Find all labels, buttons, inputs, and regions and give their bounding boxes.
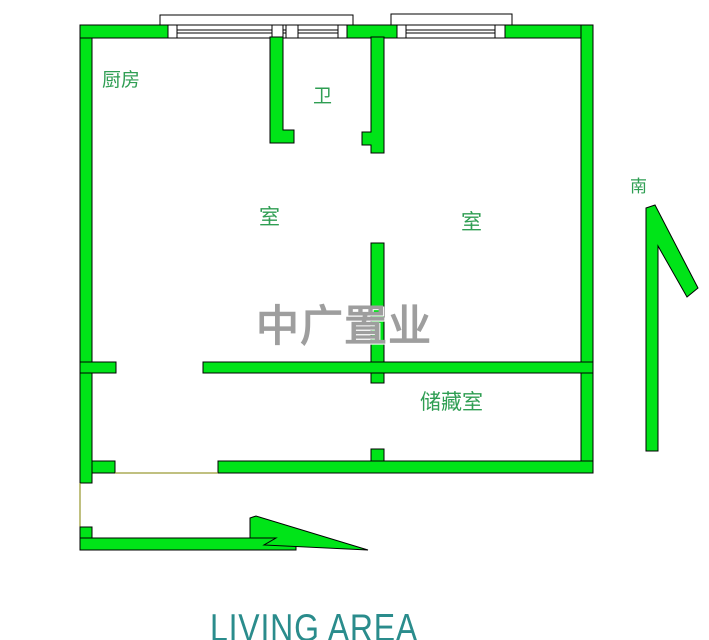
window-left	[168, 25, 347, 38]
storage-room-label: 储藏室	[420, 392, 483, 413]
living-area-caption: LIVING AREA	[210, 609, 418, 640]
south-label: 南	[630, 178, 647, 195]
entry-arrow-icon	[250, 516, 368, 550]
south-arrow-icon	[646, 205, 698, 451]
room-left-label: 室	[259, 207, 280, 228]
kitchen-label: 厨房	[102, 71, 140, 90]
interior-walls	[80, 243, 593, 473]
floorplan-image: 厨房 卫 室 室 储藏室 南 中广置业 LIVING AREA	[0, 0, 709, 640]
bathroom-label: 卫	[313, 87, 332, 106]
window-sill-right	[391, 14, 512, 25]
window-sill-left	[160, 15, 353, 25]
exterior-walls	[80, 25, 593, 483]
room-right-label: 室	[461, 212, 482, 233]
agency-watermark: 中广置业	[256, 306, 432, 349]
window-right	[397, 25, 505, 38]
